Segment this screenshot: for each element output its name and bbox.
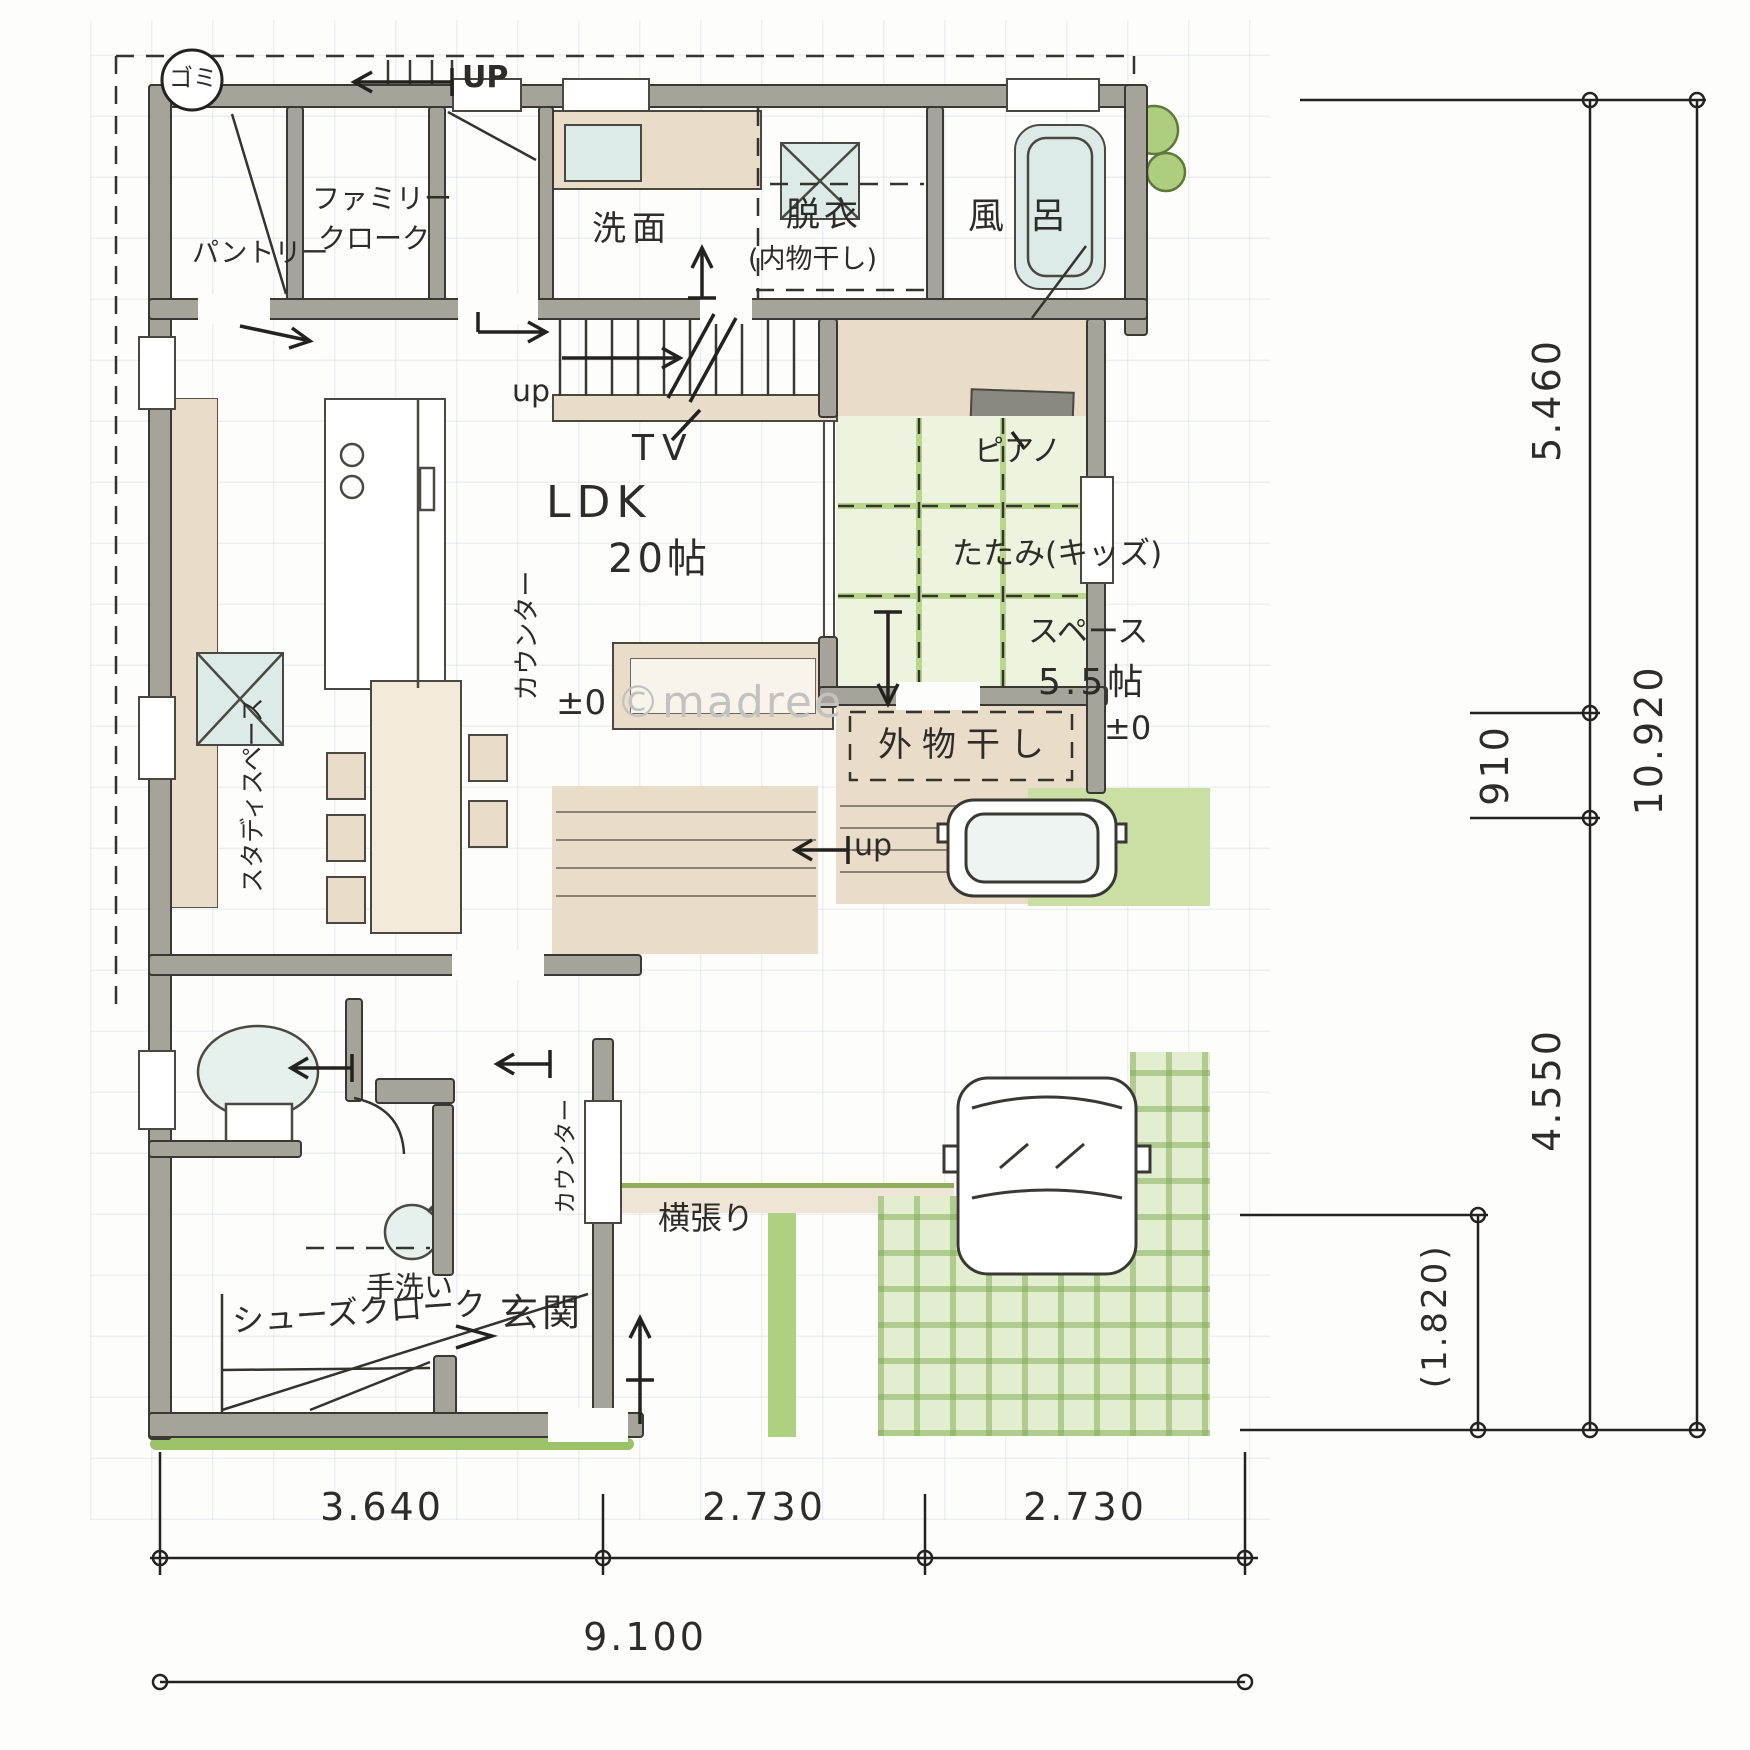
wall-bath-left xyxy=(926,106,944,306)
window xyxy=(562,78,650,112)
dressing-room-label-1: 脱衣 xyxy=(786,198,862,234)
dining-chair xyxy=(326,876,366,924)
dim-right-sub: (1.820) xyxy=(1418,1216,1454,1416)
kitchen-counter-label: カウンター xyxy=(514,536,541,736)
ldk-size-label: 20帖 xyxy=(608,538,711,580)
wall-ldk-bottom xyxy=(148,954,642,976)
dining-chair xyxy=(326,814,366,862)
dim-bottom-3: 2.730 xyxy=(1005,1488,1165,1528)
entrance-counter-label: カウンター xyxy=(554,1056,578,1256)
planting-strip xyxy=(768,1213,796,1437)
family-closet-label-2: クローク xyxy=(318,224,430,253)
wall-entrance-right xyxy=(592,1038,614,1438)
dining-chair xyxy=(468,800,508,848)
tatami-level-label: ±0 xyxy=(1104,712,1151,746)
washbasin xyxy=(564,124,642,182)
bath-label-1: 風 xyxy=(968,198,1004,236)
door-opening xyxy=(452,950,544,980)
dim-bottom-total: 9.100 xyxy=(555,1618,735,1658)
family-closet-label-1: ファミリー xyxy=(312,184,452,213)
wall-toilet-bottom xyxy=(148,1140,302,1158)
piano-label: ピアノ xyxy=(974,436,1061,468)
window xyxy=(138,1050,176,1130)
wall-post-upper xyxy=(818,318,838,418)
dim-right-3: 4.550 xyxy=(1528,990,1568,1190)
tatami-label-1: たたみ(キッズ) xyxy=(952,538,1162,571)
door-opening xyxy=(458,294,538,324)
dining-table xyxy=(370,680,462,934)
window xyxy=(1006,78,1100,112)
deck-up-label: up xyxy=(854,830,892,862)
floorplan-sheet: ゴミ UP パントリー ファミリー クローク 洗面 脱衣 (内物干し) 風 呂 … xyxy=(0,0,1750,1750)
door-opening xyxy=(896,682,980,710)
door-opening xyxy=(700,294,752,324)
siding-label: 横張り xyxy=(658,1202,754,1236)
entrance-label: 玄関 xyxy=(500,1294,584,1334)
window xyxy=(138,696,176,780)
dining-chair xyxy=(326,752,366,800)
wall-entrance-stub xyxy=(433,1355,457,1415)
study-space-label: スタディスペース xyxy=(240,685,266,905)
entrance-door-opening xyxy=(548,1408,628,1442)
pantry-label: パントリー xyxy=(192,240,328,268)
garden-patch xyxy=(1028,788,1210,906)
bath-label-2: 呂 xyxy=(1030,198,1066,236)
wall-handwash-right xyxy=(432,1104,454,1276)
wall-washroom-left xyxy=(538,106,554,314)
wall-familycloset-left xyxy=(286,106,304,314)
door-opening xyxy=(198,294,270,324)
tv-label: TV xyxy=(632,430,695,468)
tatami-label-2: スペース xyxy=(1028,616,1148,649)
up-label-top: UP xyxy=(462,62,508,94)
outdoor-laundry-label: 外物干し xyxy=(878,728,1054,764)
dim-right-total: 10.920 xyxy=(1630,640,1670,840)
watermark: ©madree xyxy=(616,680,843,726)
dim-right-2: 910 xyxy=(1476,665,1516,865)
dim-bottom-1: 3.640 xyxy=(302,1488,462,1528)
dressing-room-label-2: (内物干し) xyxy=(748,246,877,274)
wood-deck-floor xyxy=(552,786,818,954)
dim-bottom-2: 2.730 xyxy=(684,1488,844,1528)
kitchen-island xyxy=(324,398,446,690)
tv-board xyxy=(552,394,838,422)
stairs-up-label: up xyxy=(512,376,550,408)
driveway-paving-side xyxy=(1130,1052,1210,1436)
washroom-label: 洗面 xyxy=(592,212,672,248)
wall-band xyxy=(148,298,1148,320)
tatami-size-label: 5.5帖 xyxy=(1038,664,1147,702)
window-entrance-counter xyxy=(584,1100,622,1224)
ldk-label: LDK xyxy=(546,480,651,526)
window xyxy=(138,336,176,410)
dining-chair xyxy=(468,734,508,782)
wall-handwash-top xyxy=(375,1078,455,1104)
wall-toilet-right xyxy=(345,998,363,1102)
trash-label: ゴミ xyxy=(165,66,221,91)
ldk-level-label: ±0 xyxy=(556,686,606,722)
dim-right-1: 5.460 xyxy=(1528,300,1568,500)
